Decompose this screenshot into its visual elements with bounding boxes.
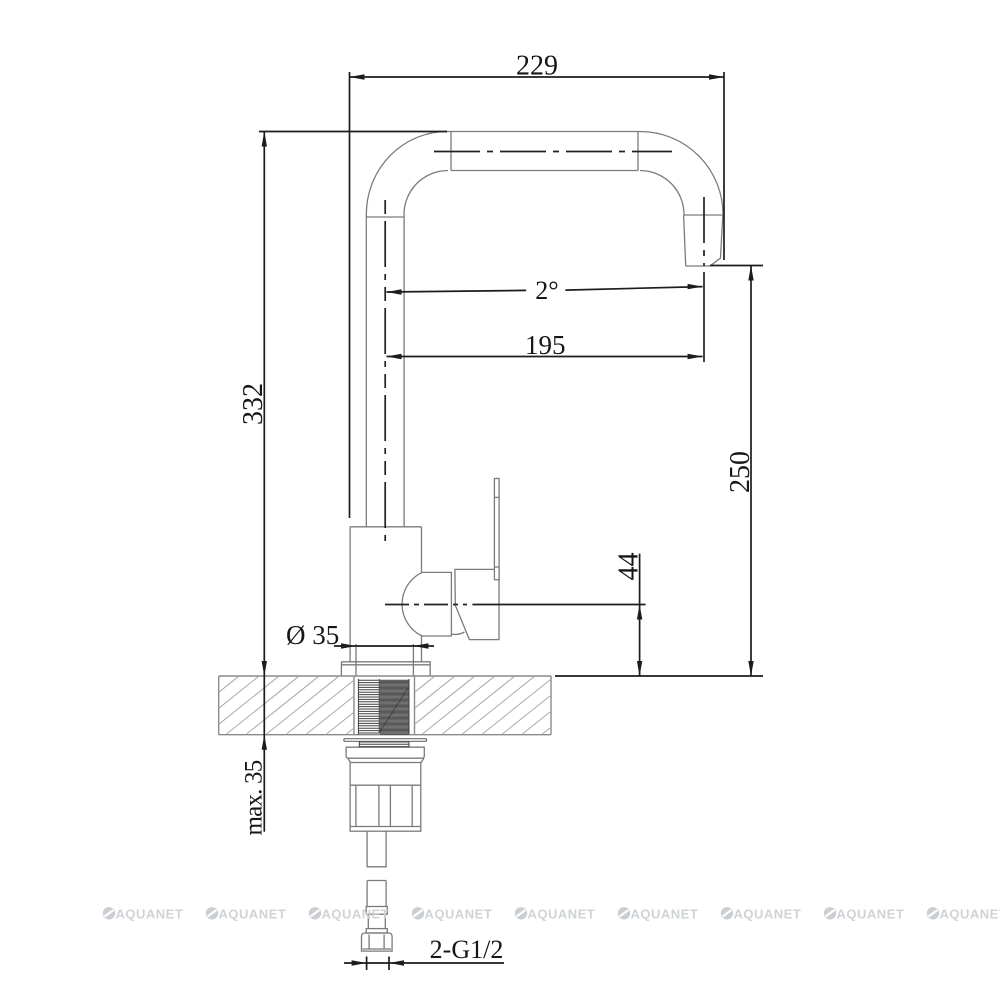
svg-text:AQUANET: AQUANET (528, 906, 596, 921)
svg-text:AQUANET: AQUANET (734, 906, 802, 921)
svg-text:AQUANET: AQUANET (219, 906, 287, 921)
svg-text:229: 229 (516, 51, 558, 82)
svg-text:AQUANET: AQUANET (837, 906, 905, 921)
svg-text:Ø 35: Ø 35 (286, 620, 339, 650)
svg-text:332: 332 (238, 383, 269, 425)
svg-text:max. 35: max. 35 (241, 760, 268, 835)
svg-text:195: 195 (525, 330, 566, 360)
svg-text:AQUANET: AQUANET (425, 906, 493, 921)
svg-text:250: 250 (725, 451, 756, 493)
svg-text:AQUANET: AQUANET (322, 906, 390, 921)
svg-text:2-G1/2: 2-G1/2 (430, 935, 504, 964)
svg-text:AQUANET: AQUANET (631, 906, 699, 921)
svg-text:44: 44 (614, 552, 645, 580)
svg-text:AQUANET: AQUANET (940, 906, 1000, 921)
svg-text:2°: 2° (535, 276, 558, 305)
svg-text:AQUANET: AQUANET (116, 906, 184, 921)
